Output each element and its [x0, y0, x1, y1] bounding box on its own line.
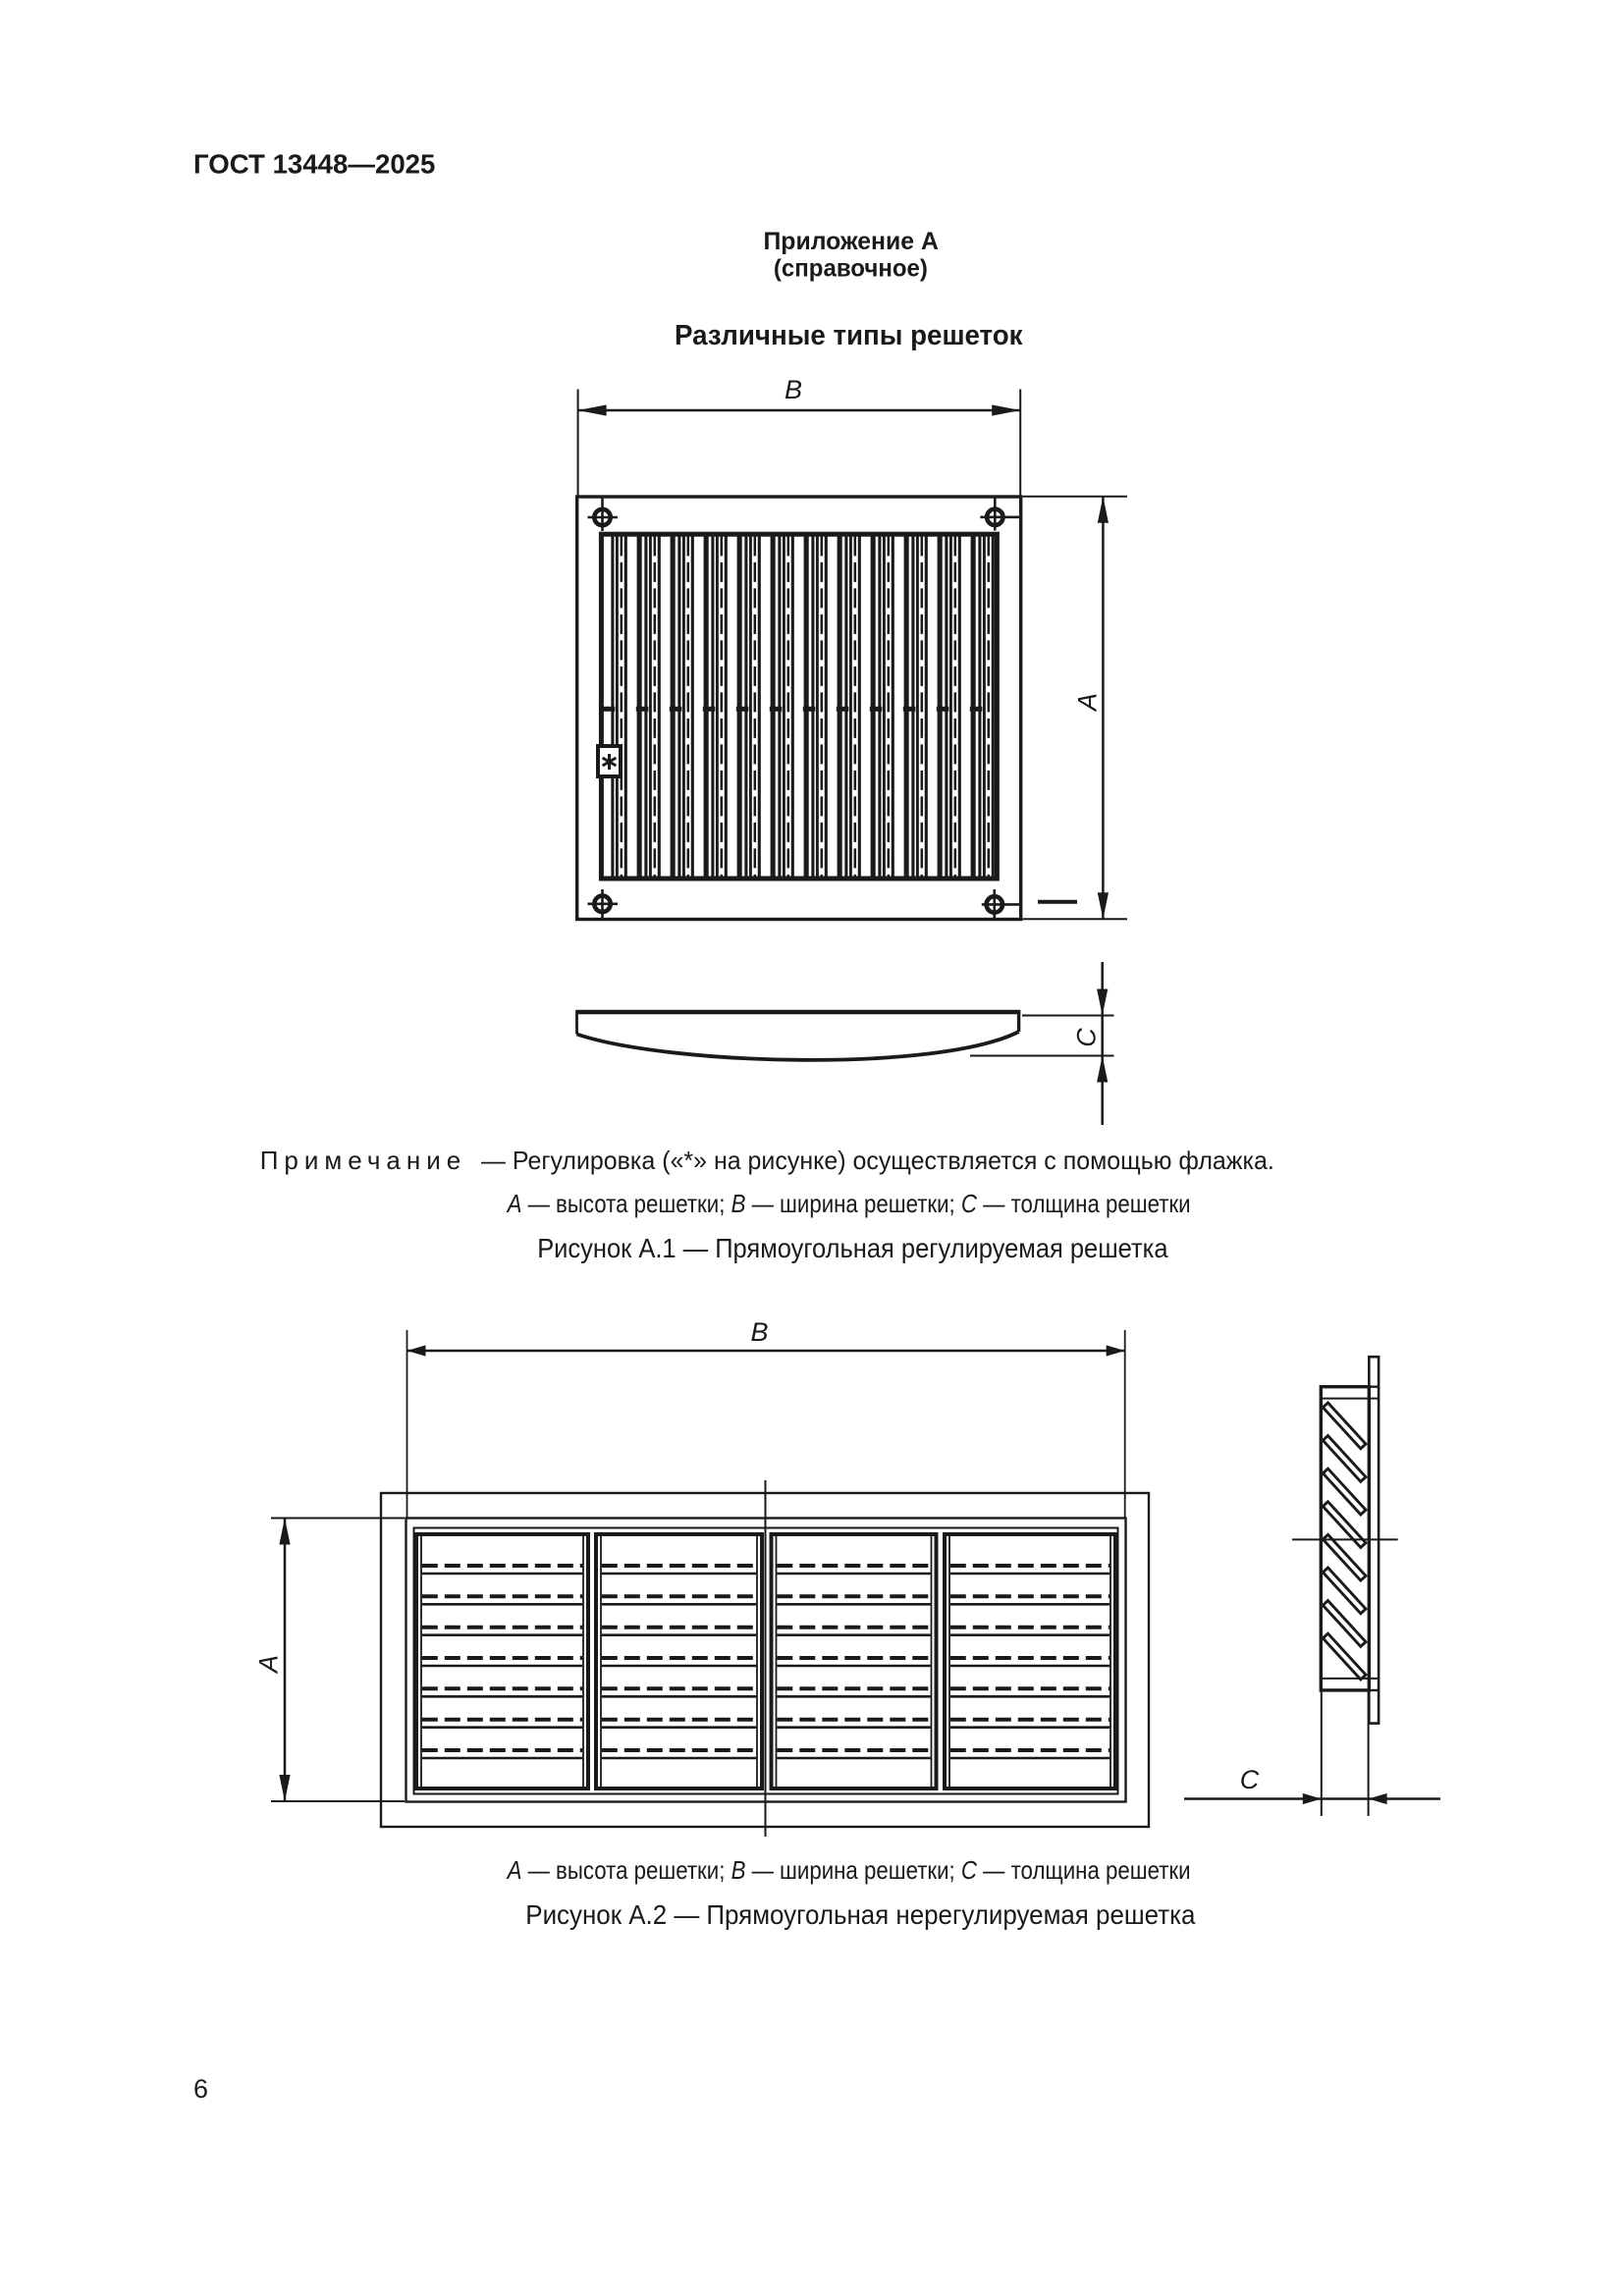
svg-text:B: B	[750, 1317, 768, 1347]
svg-text:А — высота решетки; В — ширина: А — высота решетки; В — ширина решетки; …	[506, 1855, 1191, 1885]
svg-text:Приложение А: Приложение А	[763, 228, 939, 255]
svg-text:Различные типы решеток: Различные типы решеток	[675, 320, 1023, 351]
svg-text:— Регулировка («*» на рисунке): — Регулировка («*» на рисунке) осуществл…	[481, 1146, 1274, 1175]
svg-text:6: 6	[193, 2074, 208, 2104]
svg-text:C: C	[1072, 1028, 1102, 1047]
svg-text:A: A	[254, 1655, 284, 1675]
svg-text:C: C	[1240, 1765, 1260, 1794]
svg-text:B: B	[785, 375, 802, 404]
svg-text:Рисунок А.2 — Прямоугольная не: Рисунок А.2 — Прямоугольная нерегулируем…	[525, 1898, 1195, 1930]
svg-text:А — высота решетки; В — ширина: А — высота решетки; В — ширина решетки; …	[506, 1189, 1191, 1218]
svg-text:(справочное): (справочное)	[774, 255, 928, 283]
svg-text:ГОСТ 13448—2025: ГОСТ 13448—2025	[193, 149, 435, 180]
svg-text:Примечание: Примечание	[260, 1146, 467, 1175]
svg-text:Рисунок А.1 — Прямоугольная ре: Рисунок А.1 — Прямоугольная регулируемая…	[537, 1232, 1168, 1263]
svg-text:A: A	[1073, 693, 1103, 713]
